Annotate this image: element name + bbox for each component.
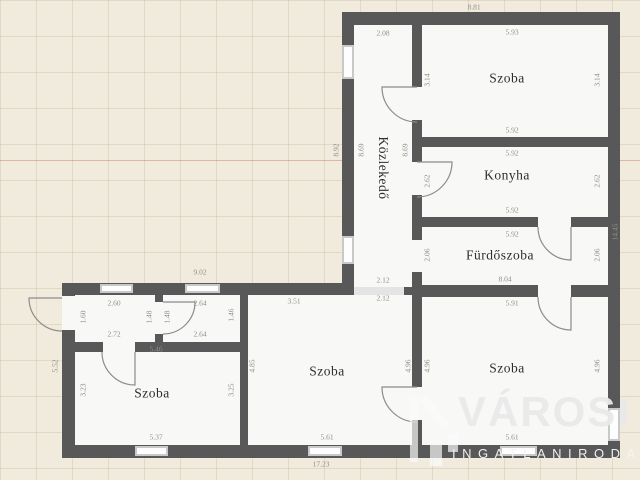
dimension-label: 4.96 — [423, 359, 431, 372]
dimension-label: 8.69 — [401, 143, 409, 156]
dimension-label: 2.12 — [376, 294, 389, 302]
dimension-label: 3.14 — [593, 73, 601, 86]
dimension-label: 5.37 — [149, 433, 162, 441]
room-label: Szoba — [134, 386, 170, 400]
dimension-label: 2.62 — [593, 174, 601, 187]
dimension-label: 4.85 — [248, 359, 256, 372]
dimension-label: 4.96 — [593, 359, 601, 372]
dimension-label: 4.96 — [404, 359, 412, 372]
dimension-label: 5.92 — [505, 206, 518, 214]
room-label: Szoba — [489, 361, 525, 375]
dimension-label: 5.52 — [51, 359, 59, 372]
dimension-label: 2.12 — [376, 276, 389, 284]
dimension-label: 1.46 — [227, 308, 235, 321]
room-label: Közlekedő — [376, 137, 390, 200]
door-arc-entry-to-room — [102, 352, 135, 385]
door-arc-bottom-right-room — [538, 297, 571, 330]
room-label: Szoba — [489, 71, 525, 85]
room-label: Szoba — [309, 364, 345, 378]
room-label: Fürdőszoba — [466, 248, 534, 262]
dimension-label: 8.92 — [332, 143, 340, 156]
dimension-label: 5.91 — [505, 299, 518, 307]
dimension-label: 2.64 — [193, 330, 206, 338]
dimension-label: 5.92 — [505, 126, 518, 134]
dimension-label: 17.23 — [313, 460, 330, 468]
dimension-label: 2.60 — [107, 299, 120, 307]
door-arc-hall-to-top-room — [382, 87, 417, 122]
floorplan-canvas: 8.812.085.938.928.698.693.143.145.925.92… — [0, 0, 640, 480]
dimension-label: 2.72 — [107, 330, 120, 338]
dimension-label: 2.62 — [423, 174, 431, 187]
dimension-label: 8.81 — [467, 3, 480, 11]
dimension-label: 1.48 — [163, 310, 171, 323]
dimension-label: 2.06 — [423, 248, 431, 261]
dimension-label: 5.93 — [505, 28, 518, 36]
dimension-label: 1.48 — [145, 310, 153, 323]
dimension-label: 2.06 — [593, 248, 601, 261]
dimension-label: 14.45 — [611, 224, 619, 241]
dimension-label: 8.04 — [498, 275, 511, 283]
dimension-label: 1.60 — [79, 310, 87, 323]
dimension-label: 5.61 — [320, 433, 333, 441]
door-arc-entry — [29, 298, 62, 331]
dimension-label: 2.64 — [193, 299, 206, 307]
dimension-label: 3.51 — [287, 297, 300, 305]
room-label: Konyha — [484, 168, 530, 182]
dimension-label: 9.02 — [193, 268, 206, 276]
dimension-label: 5.46 — [149, 345, 162, 353]
dimension-label: 5.92 — [505, 149, 518, 157]
dimension-label: 3.25 — [227, 383, 235, 396]
dimension-label: 3.23 — [79, 383, 87, 396]
dimension-label: 2.08 — [376, 29, 389, 37]
watermark-brand: VÁROSI — [458, 391, 631, 433]
dimension-label: 5.92 — [505, 230, 518, 238]
watermark-agency: INGATLANIRODA — [452, 447, 640, 460]
dimension-label: 3.14 — [423, 73, 431, 86]
dimension-label: 8.69 — [357, 143, 365, 156]
door-arc-bathroom — [538, 227, 571, 260]
